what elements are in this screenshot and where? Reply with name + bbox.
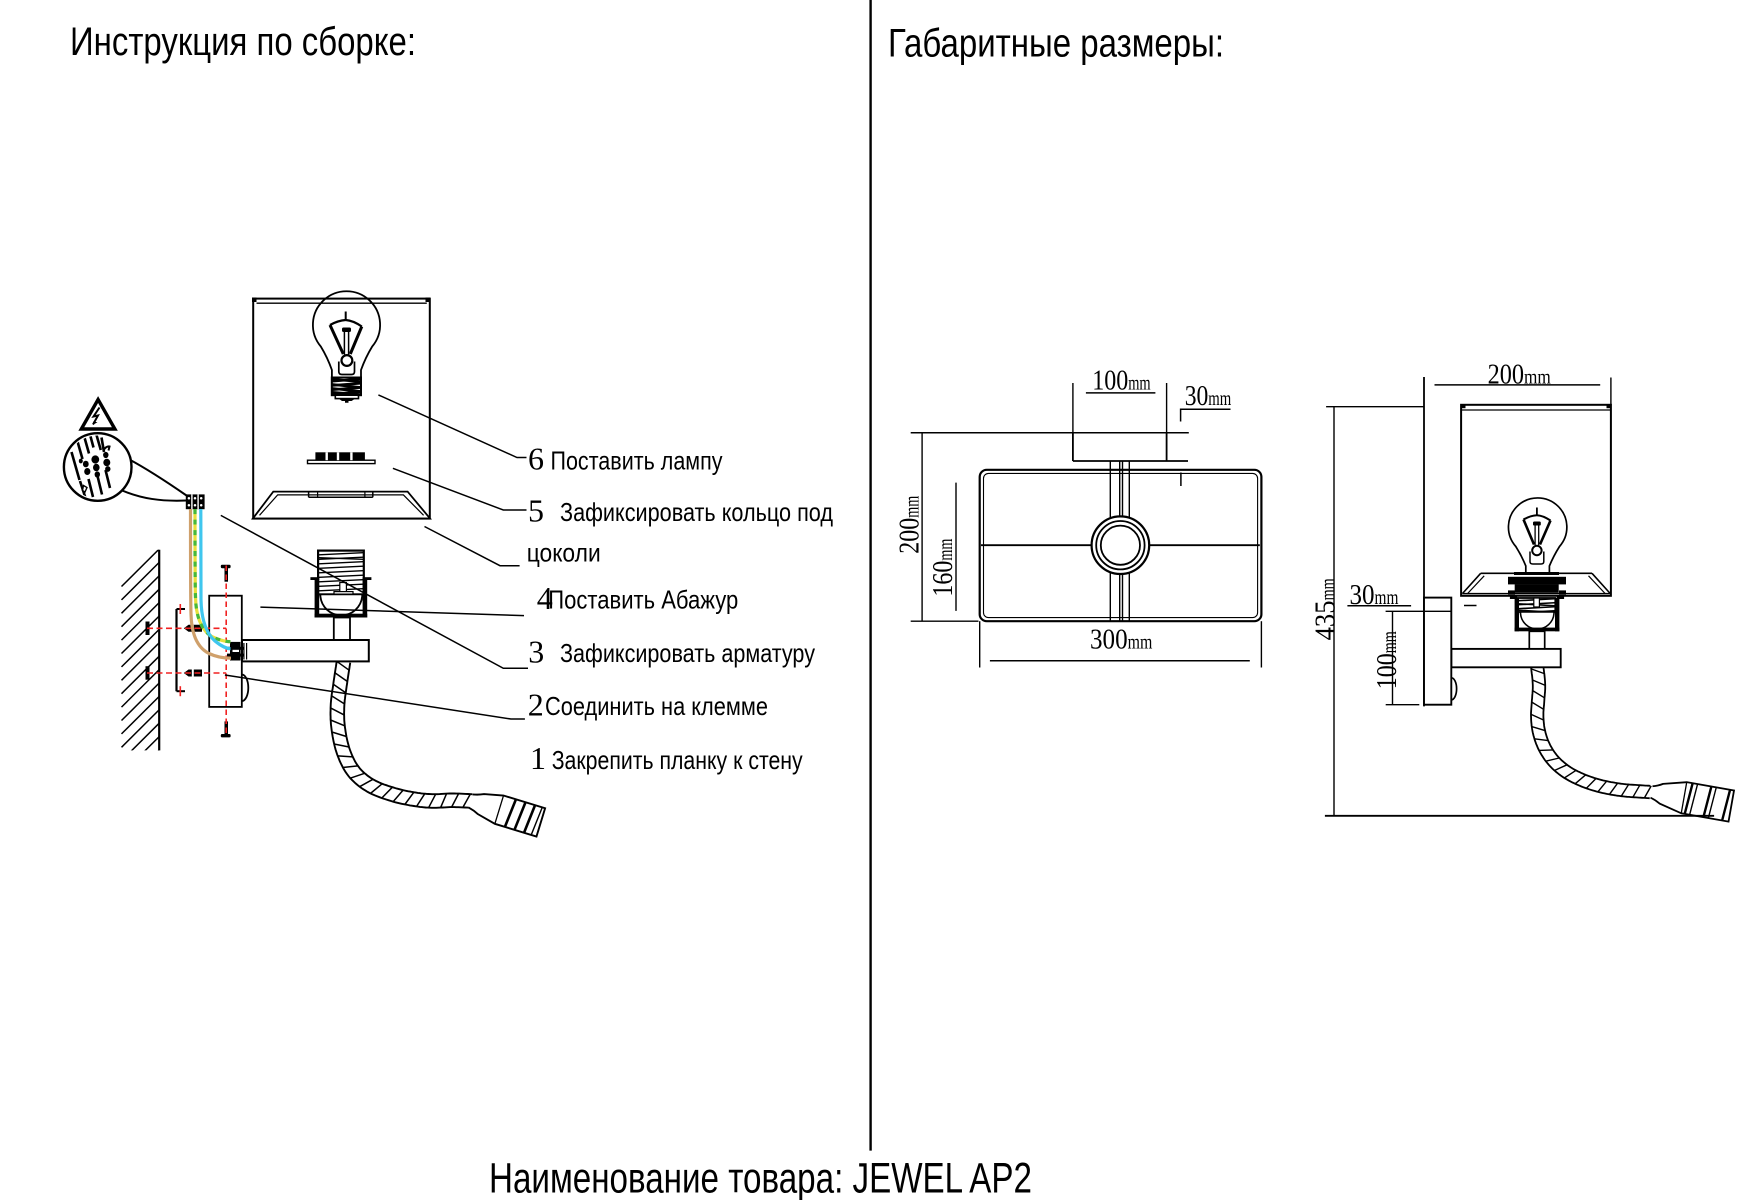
svg-text:Габаритные размеры:: Габаритные размеры: — [888, 22, 1224, 66]
svg-text:цоколи: цоколи — [527, 538, 601, 568]
svg-text:1: 1 — [530, 740, 546, 776]
svg-text:Наименование товара: JEWEL AP2: Наименование товара: JEWEL AP2 — [489, 1155, 1032, 1200]
svg-text:Зафиксировать арматуру: Зафиксировать арматуру — [560, 638, 815, 668]
svg-text:3: 3 — [528, 634, 544, 670]
svg-text:300: 300 — [1090, 624, 1128, 655]
svg-text:100: 100 — [1092, 365, 1128, 396]
svg-text:Поставить Абажур: Поставить Абажур — [548, 585, 738, 615]
svg-text:Зафиксировать кольцо под: Зафиксировать кольцо под — [560, 497, 833, 527]
svg-text:Поставить лампу: Поставить лампу — [551, 445, 723, 475]
svg-text:2: 2 — [528, 687, 544, 723]
svg-text:5: 5 — [528, 493, 544, 529]
svg-text:mm: mm — [1208, 388, 1231, 410]
svg-text:200: 200 — [1488, 359, 1524, 390]
svg-text:6: 6 — [528, 441, 544, 477]
svg-text:mm: mm — [1128, 372, 1151, 394]
svg-text:mm: mm — [1128, 631, 1153, 653]
svg-text:30: 30 — [1185, 381, 1209, 412]
svg-text:Соединить на клемме: Соединить на клемме — [545, 691, 768, 721]
svg-text:Закрепить планку к стену: Закрепить планку к стену — [552, 745, 803, 775]
svg-text:Инструкция по сборке:: Инструкция по сборке: — [70, 20, 416, 64]
